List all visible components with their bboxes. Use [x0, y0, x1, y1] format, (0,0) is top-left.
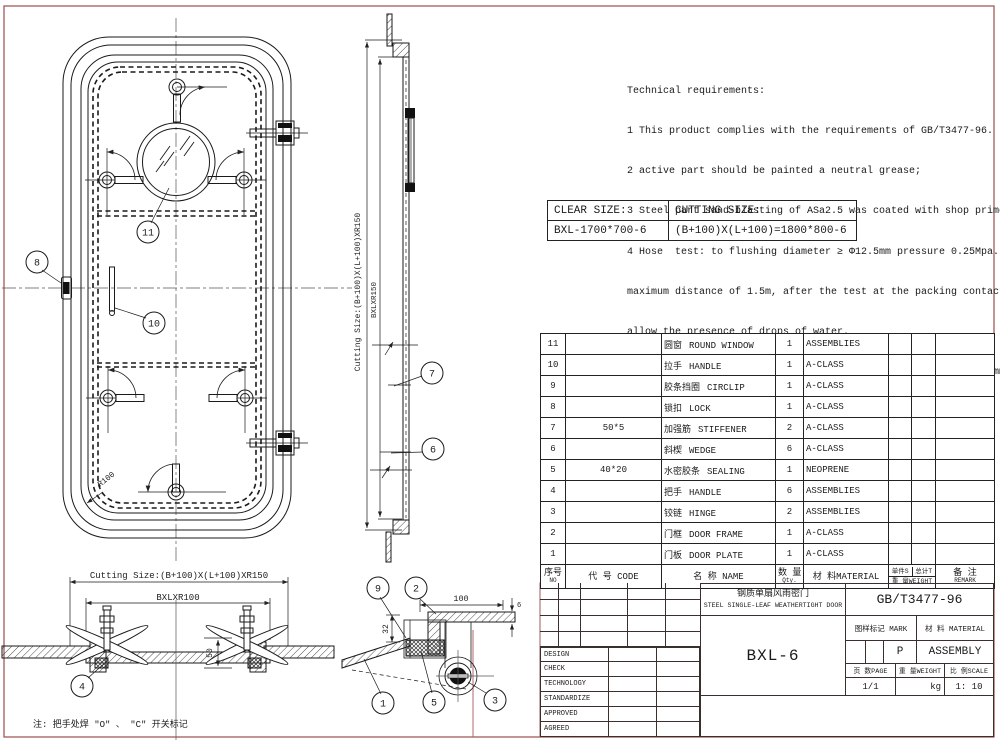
svg-text:10: 10 — [148, 320, 160, 331]
svg-text:Cutting Size:(B+100)X(L+100)XR: Cutting Size:(B+100)X(L+100)XR150 — [90, 571, 268, 581]
svg-text:7: 7 — [429, 370, 435, 381]
table-row: 4 把手HANDLE 6ASSEMBLIES — [541, 481, 995, 502]
dog-handle-right — [208, 148, 266, 215]
drawing-title-en: STEEL SINGLE-LEAF WEATHERTIGHT DOOR — [704, 600, 843, 611]
table-row: 3 铰链HINGE 2ASSEMBLIES — [541, 502, 995, 523]
note-cn: 注: 把手处焊 "O" 、 "C" 开关标记 — [33, 719, 200, 732]
handle-weld-note: 注: 把手处焊 "O" 、 "C" 开关标记 NOTE:The handle a… — [33, 694, 200, 741]
svg-text:4: 4 — [79, 683, 85, 694]
window-section — [405, 108, 415, 192]
material-value: ASSEMBLY — [916, 640, 994, 664]
svg-text:6: 6 — [430, 446, 436, 457]
dog-handle-lower-right — [209, 366, 267, 433]
svg-text:100: 100 — [453, 594, 468, 604]
cutting-size-value: (B+100)X(L+100)=1800*800-6 — [669, 221, 857, 241]
signature-agreed: AGREED — [540, 721, 609, 737]
svg-text:2: 2 — [413, 585, 419, 596]
size-table: CLEAR SIZE: CUTTING SIZE: BXL-1700*700-6… — [547, 200, 857, 241]
standard-number: GB/T3477-96 — [845, 583, 994, 616]
detail-view — [342, 598, 515, 702]
material-label: 材 料 MATERIAL — [916, 615, 994, 641]
table-row: 540*20 水密胶条SEALING 1NEOPRENE — [541, 460, 995, 481]
svg-text:9: 9 — [375, 585, 381, 596]
clear-size-label: CLEAR SIZE: — [548, 201, 669, 221]
signature-standardize: STANDARDIZE — [540, 691, 609, 707]
signature-design: DESIGN — [540, 647, 609, 662]
page-value: 1/1 — [845, 677, 896, 696]
dimension-labels: R100 Cutting Size:(B+100)X(L+100)XR150 B… — [90, 213, 521, 658]
svg-text:8: 8 — [34, 259, 40, 270]
title-block-empty — [700, 695, 994, 737]
drawing-title: 钢质单扇风雨密门 STEEL SINGLE-LEAF WEATHERTIGHT … — [700, 583, 846, 616]
hinge-pin-detail — [436, 622, 494, 702]
table-row: 8 锁扣LOCK 1A-CLASS — [541, 397, 995, 418]
svg-text:Cutting Size:(B+100)X(L+100)XR: Cutting Size:(B+100)X(L+100)XR150 — [354, 213, 363, 372]
table-row: 10 拉手HANDLE 1A-CLASS — [541, 355, 995, 376]
svg-text:11: 11 — [142, 229, 154, 240]
svg-text:1: 1 — [380, 700, 386, 711]
scale-value: 1: 10 — [944, 677, 994, 696]
table-row: 750*5 加强筋STIFFENER 2A-CLASS — [541, 418, 995, 439]
drawing-title-cn: 钢质单扇风雨密门 — [737, 589, 809, 600]
technical-requirements-title: Technical requirements: — [627, 85, 999, 98]
mark-label: 图样标记 MARK — [845, 615, 917, 641]
hinge — [246, 121, 308, 145]
svg-text:6: 6 — [517, 602, 521, 610]
table-row: 9 胶条挡圈CIRCLIP 1A-CLASS — [541, 376, 995, 397]
pull-handle — [110, 267, 115, 316]
svg-text:50: 50 — [206, 648, 215, 658]
table-row: 1 门板DOOR PLATE 1A-CLASS — [541, 544, 995, 565]
front-view — [2, 18, 352, 562]
dog-handle-lower-left — [86, 366, 144, 433]
signature-check: CHECK — [540, 661, 609, 677]
signature-approved: APPROVED — [540, 706, 609, 722]
dog-handle-top — [169, 79, 227, 122]
table-row: 11 圆窗ROUND WINDOW 1ASSEMBLIES — [541, 334, 995, 355]
drawing-sheet: 11 10 8 7 6 4 9 2 1 5 3 R100 Cutting Siz… — [0, 0, 1000, 741]
parts-table: 11 圆窗ROUND WINDOW 1ASSEMBLIES 10 拉手HANDL… — [540, 333, 995, 589]
svg-text:BXLXR150: BXLXR150 — [371, 282, 379, 319]
weight-label: 重 量WEIGHT — [895, 663, 945, 678]
svg-text:3: 3 — [492, 697, 498, 708]
page-label: 页 数PAGE — [845, 663, 896, 678]
cutting-size-label: CUTTING SIZE: — [669, 201, 857, 221]
clear-size-value: BXL-1700*700-6 — [548, 221, 669, 241]
dog-handle-bottom — [138, 464, 226, 500]
svg-text:R100: R100 — [96, 470, 117, 489]
scale-label: 比 例SCALE — [944, 663, 994, 678]
drawing-number: BXL-6 — [700, 615, 846, 696]
mark-value: P — [883, 640, 917, 664]
weight-value: kg — [895, 677, 945, 696]
table-row: 2 门框DOOR FRAME 1A-CLASS — [541, 523, 995, 544]
svg-text:32: 32 — [382, 624, 391, 634]
revision-grid — [540, 583, 700, 647]
svg-text:5: 5 — [431, 699, 437, 710]
signature-block: DESIGN CHECK TECHNOLOGY STANDARDIZE APPR… — [540, 647, 700, 737]
table-row: 6 斜楔WEDGE 6A-CLASS — [541, 439, 995, 460]
svg-text:BXLXR100: BXLXR100 — [156, 593, 199, 603]
title-block: DESIGN CHECK TECHNOLOGY STANDARDIZE APPR… — [540, 583, 994, 737]
signature-technology: TECHNOLOGY — [540, 676, 609, 692]
